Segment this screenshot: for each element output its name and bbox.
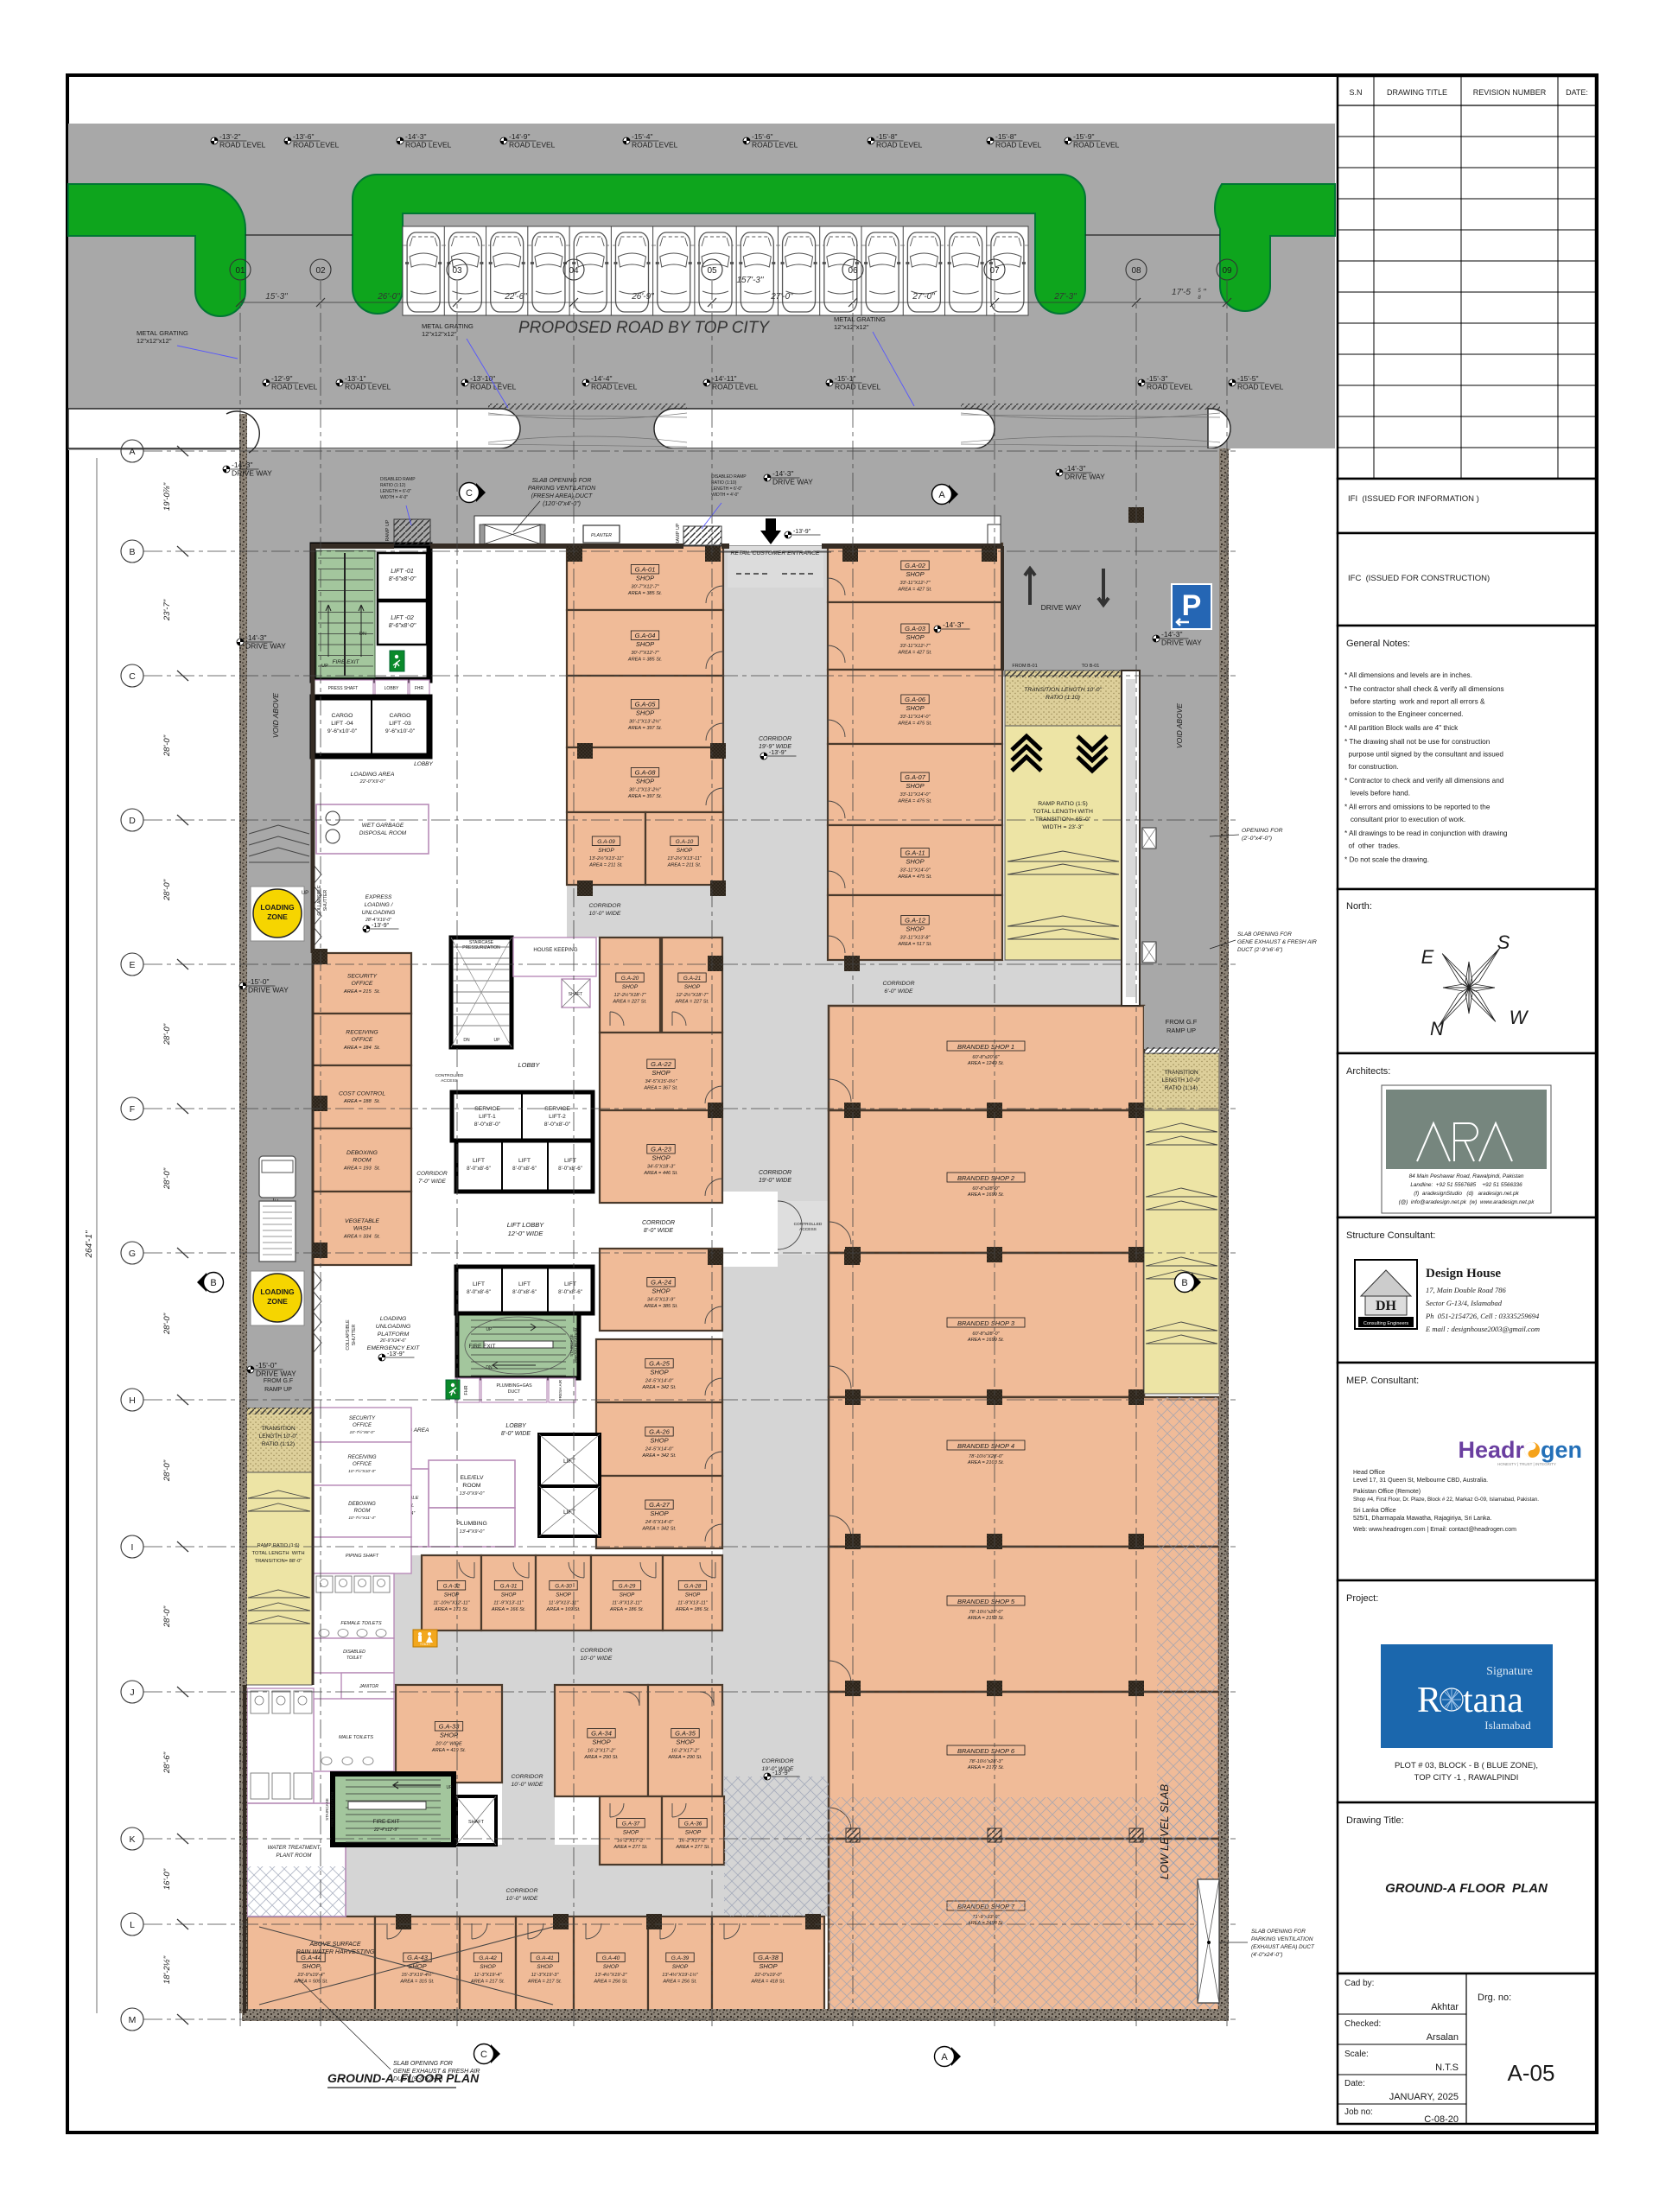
svg-text:DRIVE WAY: DRIVE WAY: [245, 642, 286, 651]
svg-text:Architects:: Architects:: [1346, 1066, 1390, 1077]
svg-text:11'-9"X13'-11": 11'-9"X13'-11": [549, 1601, 580, 1606]
svg-text:DRIVE WAY: DRIVE WAY: [772, 478, 813, 486]
svg-text:ZONE: ZONE: [267, 912, 288, 921]
svg-text:SHOP: SHOP: [676, 1738, 694, 1746]
svg-text:SHOP: SHOP: [906, 570, 924, 578]
svg-text:OFFICE: OFFICE: [353, 1423, 372, 1428]
svg-text:BRANDED SHOP 1: BRANDED SHOP 1: [957, 1043, 1014, 1051]
svg-text:METAL GRATING: METAL GRATING: [137, 329, 188, 337]
svg-text:02: 02: [315, 266, 326, 276]
svg-text:ROAD LEVEL: ROAD LEVEL: [712, 383, 759, 391]
svg-text:AREA = 315 St.: AREA = 315 St.: [399, 1980, 434, 1985]
svg-text:G.A-12: G.A-12: [905, 917, 926, 925]
svg-text:* The drawing shall not be use: * The drawing shall not be use for const…: [1344, 738, 1491, 746]
svg-text:AREA = 186 St.: AREA = 186 St.: [609, 1607, 644, 1612]
svg-text:-13'-9": -13'-9": [372, 923, 390, 929]
svg-text:AREA = 385 St.: AREA = 385 St.: [627, 658, 662, 663]
svg-text:SHAFT: SHAFT: [569, 992, 582, 997]
svg-text:-15'-8": -15'-8": [876, 132, 897, 141]
svg-text:26'-9"X24'-6": 26'-9"X24'-6": [379, 1338, 407, 1344]
svg-text:omission to the Engineer conce: omission to the Engineer concerned.: [1344, 710, 1463, 718]
svg-text:19'-0⅞": 19'-0⅞": [162, 482, 172, 511]
svg-text:Level 17, 31 Queen St, Melbour: Level 17, 31 Queen St, Melbourne CBD, Au…: [1353, 1478, 1488, 1484]
svg-text:* All dimensions and levels ar: * All dimensions and levels are in inche…: [1344, 671, 1472, 679]
svg-text:FHR: FHR: [464, 1385, 469, 1395]
svg-text:General Notes:: General Notes:: [1346, 639, 1410, 649]
svg-text:12'-2½"X18'-7": 12'-2½"X18'-7": [677, 992, 709, 998]
svg-text:10'-7½"X10'-0": 10'-7½"X10'-0": [348, 1468, 376, 1474]
svg-text:K: K: [129, 1834, 135, 1845]
svg-text:LENGTH 10'-0": LENGTH 10'-0": [1162, 1077, 1201, 1084]
svg-text:-14'-3": -14'-3": [772, 469, 793, 478]
svg-text:D: D: [129, 816, 136, 826]
svg-text:WIDTH = 23'-3": WIDTH = 23'-3": [1042, 824, 1084, 830]
svg-text:G.A-02: G.A-02: [905, 562, 926, 569]
svg-text:11'-3"X19'-3": 11'-3"X19'-3": [531, 1973, 560, 1978]
svg-text:DN: DN: [486, 1365, 493, 1370]
svg-text:COLLAPSIBLE: COLLAPSIBLE: [317, 885, 322, 916]
svg-text:13'-4"X9'-0": 13'-4"X9'-0": [460, 1529, 486, 1535]
svg-text:PRESS SHAFT: PRESS SHAFT: [328, 686, 359, 691]
svg-text:11'-3"X19'-4": 11'-3"X19'-4": [474, 1973, 503, 1978]
svg-text:CORRIDOR: CORRIDOR: [882, 981, 914, 987]
svg-text:PARKING VENTILATION: PARKING VENTILATION: [1251, 1936, 1313, 1942]
svg-text:-15'-6": -15'-6": [752, 132, 772, 141]
svg-text:8'-6"x8'-0": 8'-6"x8'-0": [389, 576, 416, 582]
svg-text:DRIVE WAY: DRIVE WAY: [1161, 639, 1202, 647]
svg-text:AREA = 186 St.: AREA = 186 St.: [675, 1607, 709, 1612]
svg-text:G.A-09: G.A-09: [597, 839, 615, 845]
svg-text:SHOP: SHOP: [906, 704, 924, 712]
svg-text:SHOP: SHOP: [556, 1592, 571, 1599]
svg-text:AREA = 427 St.: AREA = 427 St.: [897, 588, 931, 593]
svg-text:C: C: [466, 488, 473, 499]
svg-text:G.A-28: G.A-28: [684, 1584, 702, 1590]
svg-text:PRESSURIZATION: PRESSURIZATION: [574, 1328, 578, 1363]
svg-text:UP: UP: [302, 891, 308, 896]
svg-text:L: L: [130, 1920, 135, 1930]
svg-text:ROAD LEVEL: ROAD LEVEL: [345, 383, 391, 391]
svg-text:LIFT-2: LIFT-2: [549, 1114, 566, 1120]
svg-text:(120'-0"x4'-0"): (120'-0"x4'-0"): [543, 501, 581, 507]
svg-text:UP: UP: [486, 1327, 493, 1332]
svg-text:Shop #4, First Floor, Dr. Plaz: Shop #4, First Floor, Dr. Plaze, Block #…: [1353, 1497, 1539, 1503]
svg-text:AREA = 385 St.: AREA = 385 St.: [643, 1304, 677, 1309]
svg-text:ROAD LEVEL: ROAD LEVEL: [995, 141, 1042, 149]
svg-text:DUCT: DUCT: [508, 1389, 521, 1395]
svg-text:24'-5"X14'-0": 24'-5"X14'-0": [645, 1520, 674, 1525]
svg-text:CORRIDOR: CORRIDOR: [642, 1220, 675, 1226]
svg-text:RAMP UP: RAMP UP: [1166, 1027, 1196, 1034]
svg-text:AREA = 1699 St.: AREA = 1699 St.: [967, 1338, 1004, 1343]
svg-text:Sri Lanka Office: Sri Lanka Office: [1353, 1508, 1396, 1514]
svg-text:CORRIDOR: CORRIDOR: [511, 1774, 543, 1780]
svg-text:AREA = 227 St.: AREA = 227 St.: [612, 1000, 646, 1005]
svg-text:BRANDED SHOP 3: BRANDED SHOP 3: [957, 1319, 1015, 1327]
svg-text:I: I: [131, 1542, 134, 1553]
svg-text:8'-6"x8'-0": 8'-6"x8'-0": [389, 623, 416, 629]
svg-text:-14'-9": -14'-9": [509, 132, 530, 141]
svg-text:24'-5"X14'-0": 24'-5"X14'-0": [645, 1379, 674, 1384]
svg-text:PLUMBING+GAS: PLUMBING+GAS: [496, 1383, 532, 1389]
svg-text:AREA = 342 St.: AREA = 342 St.: [641, 1527, 676, 1532]
svg-text:AREA = 277 St.: AREA = 277 St.: [613, 1845, 647, 1850]
svg-text:33'-11"X14'-0": 33'-11"X14'-0": [900, 868, 931, 874]
svg-text:": ": [1203, 288, 1206, 297]
svg-text:G.A-41: G.A-41: [536, 1955, 554, 1961]
svg-text:26'-0": 26'-0": [377, 292, 400, 302]
svg-text:SHOP: SHOP: [302, 1962, 320, 1970]
svg-text:78'-10½"X28'-0": 78'-10½"X28'-0": [969, 1453, 1004, 1459]
svg-text:24'-5"X14'-0": 24'-5"X14'-0": [645, 1447, 674, 1452]
svg-text:ELE/ELV: ELE/ELV: [460, 1475, 484, 1481]
svg-text:Cad by:: Cad by:: [1344, 1979, 1374, 1988]
svg-text:AREA = 517 St.: AREA = 517 St.: [897, 942, 931, 947]
svg-text:RATIO (1:12): RATIO (1:12): [262, 1441, 295, 1447]
svg-text:34'-5"X15'-0½": 34'-5"X15'-0½": [645, 1078, 678, 1084]
svg-text:TRANSITION= 88'-0": TRANSITION= 88'-0": [255, 1559, 302, 1564]
svg-text:AREA = 334 St.: AREA = 334 St.: [343, 1234, 380, 1239]
svg-text:* The contractor shall check &: * The contractor shall check & verify al…: [1344, 685, 1504, 693]
svg-text:10'-7½"X11'-4": 10'-7½"X11'-4": [348, 1515, 376, 1521]
svg-text:AREA = 217 St.: AREA = 217 St.: [470, 1980, 505, 1985]
svg-text:UP: UP: [321, 664, 328, 669]
svg-text:33'-11"X14'-0": 33'-11"X14'-0": [900, 792, 931, 798]
svg-text:8'-0" WIDE: 8'-0" WIDE: [501, 1431, 531, 1437]
svg-text:PLUMBING: PLUMBING: [456, 1521, 487, 1527]
svg-text:SHOP: SHOP: [906, 925, 924, 933]
svg-text:* Do not scale the drawing.: * Do not scale the drawing.: [1344, 856, 1429, 864]
svg-text:AREA = 342 St.: AREA = 342 St.: [641, 1453, 676, 1459]
svg-text:LOBBY: LOBBY: [518, 1061, 540, 1069]
svg-text:AREA = 227 St.: AREA = 227 St.: [674, 1000, 709, 1005]
svg-text:AREA = 385 St.: AREA = 385 St.: [627, 591, 662, 596]
svg-text:ROAD LEVEL: ROAD LEVEL: [835, 383, 881, 391]
svg-text:DRAWING TITLE: DRAWING TITLE: [1387, 88, 1447, 97]
svg-text:7'-0" WIDE: 7'-0" WIDE: [418, 1179, 446, 1185]
svg-text:G.A-26: G.A-26: [649, 1428, 671, 1436]
svg-text:H: H: [129, 1395, 136, 1406]
svg-text:BRANDED SHOP 5: BRANDED SHOP 5: [957, 1598, 1015, 1605]
svg-text:AREA = 2172 St.: AREA = 2172 St.: [967, 1765, 1004, 1770]
svg-text:8'-0"x8'-6": 8'-0"x8'-6": [512, 1166, 537, 1172]
svg-text:09: 09: [1222, 266, 1232, 276]
svg-text:Pakistan Office (Remote): Pakistan Office (Remote): [1353, 1489, 1421, 1495]
svg-text:G.A-38: G.A-38: [758, 1954, 779, 1961]
svg-text:ROAD LEVEL: ROAD LEVEL: [1147, 383, 1193, 391]
svg-text:27'-3": 27'-3": [1053, 292, 1077, 302]
svg-text:* Contractor to check and veri: * Contractor to check and verify all dim…: [1344, 777, 1504, 785]
svg-text:22'-6": 22'-6": [504, 292, 527, 302]
svg-text:Consulting Engineers: Consulting Engineers: [1363, 1321, 1409, 1326]
svg-text:SERVICE: SERVICE: [544, 1106, 570, 1112]
svg-text:COST CONTROL: COST CONTROL: [339, 1090, 385, 1096]
svg-text:G.A-34: G.A-34: [591, 1730, 612, 1738]
svg-text:RAMP UP: RAMP UP: [676, 523, 681, 544]
svg-text:RECEIVING: RECEIVING: [347, 1455, 376, 1460]
svg-text:-15'-0": -15'-0": [256, 1361, 276, 1370]
svg-text:6'-0" WIDE: 6'-0" WIDE: [884, 988, 913, 995]
svg-text:G.A-04: G.A-04: [635, 632, 656, 639]
svg-text:06: 06: [848, 266, 858, 276]
svg-text:AREA = 475 St.: AREA = 475 St.: [897, 721, 931, 727]
svg-text:9'-6"x10'-0": 9'-6"x10'-0": [327, 728, 358, 734]
svg-text:CORRIDOR: CORRIDOR: [588, 903, 620, 909]
svg-text:AREA = 505 St.: AREA = 505 St.: [293, 1980, 327, 1985]
svg-text:17, Main Double Road 786: 17, Main Double Road 786: [1426, 1286, 1507, 1294]
svg-text:ROOM: ROOM: [462, 1483, 480, 1489]
svg-text:B: B: [210, 1278, 216, 1288]
svg-text:WATER TREATMENT: WATER TREATMENT: [268, 1845, 321, 1851]
svg-text:PIPING SHAFT: PIPING SHAFT: [346, 1554, 379, 1559]
svg-text:AREA = 475 St.: AREA = 475 St.: [897, 874, 931, 880]
svg-text:FEMALE TOILETS: FEMALE TOILETS: [340, 1621, 381, 1626]
svg-text:ROAD LEVEL: ROAD LEVEL: [1073, 141, 1120, 149]
svg-text:A-05: A-05: [1508, 2060, 1555, 2086]
svg-text:ROAD LEVEL: ROAD LEVEL: [632, 141, 678, 149]
svg-text:-14'-4": -14'-4": [591, 374, 612, 383]
svg-text:SHOP: SHOP: [501, 1592, 517, 1599]
svg-text:28'-0": 28'-0": [162, 1605, 172, 1628]
svg-text:LOADING /: LOADING /: [365, 902, 394, 908]
svg-text:04: 04: [569, 266, 579, 276]
svg-text:-15'-9": -15'-9": [1073, 132, 1094, 141]
svg-text:Scale:: Scale:: [1344, 2050, 1369, 2059]
svg-text:28'-0": 28'-0": [162, 734, 172, 757]
svg-text:Sector G-13/4, Islamabad: Sector G-13/4, Islamabad: [1426, 1299, 1503, 1307]
svg-text:22'-4"x12'-9": 22'-4"x12'-9": [373, 1827, 398, 1833]
svg-text:G.A-42: G.A-42: [479, 1955, 497, 1961]
svg-text:ROAD LEVEL: ROAD LEVEL: [271, 383, 318, 391]
svg-text:Structure Consultant:: Structure Consultant:: [1346, 1230, 1435, 1241]
svg-text:W: W: [1510, 1007, 1529, 1028]
svg-text:01: 01: [235, 266, 245, 276]
svg-text:SECURITY: SECURITY: [349, 1416, 376, 1421]
svg-text:S.N: S.N: [1349, 88, 1362, 97]
svg-text:LIFT -03: LIFT -03: [389, 721, 411, 727]
svg-text:G.A-22: G.A-22: [651, 1060, 672, 1068]
svg-text:DRIVE WAY: DRIVE WAY: [232, 469, 272, 478]
svg-text:FRESH AIR: FRESH AIR: [558, 1379, 563, 1401]
svg-text:Signature: Signature: [1486, 1665, 1533, 1678]
svg-text:AREA = 419 St.: AREA = 419 St.: [431, 1748, 466, 1753]
svg-text:SHOP: SHOP: [684, 984, 701, 990]
svg-text:SHOP: SHOP: [906, 633, 924, 641]
svg-text:IFI (ISSUED FOR INFORMATION ): IFI (ISSUED FOR INFORMATION ): [1348, 494, 1479, 504]
svg-text:M: M: [129, 2015, 137, 2025]
svg-text:12'-2½"X18'-7": 12'-2½"X18'-7": [614, 992, 647, 998]
svg-text:-14'-3": -14'-3": [1161, 630, 1182, 639]
svg-text:FROM G.F: FROM G.F: [1166, 1018, 1198, 1026]
svg-text:AREA = 211 St.: AREA = 211 St.: [588, 863, 623, 868]
svg-text:G.A-07: G.A-07: [905, 773, 926, 781]
svg-text:G.A-33: G.A-33: [439, 1723, 461, 1731]
svg-text:PLANT ROOM: PLANT ROOM: [276, 1853, 313, 1859]
svg-text:G.A-39: G.A-39: [671, 1955, 690, 1961]
svg-text:G.A-03: G.A-03: [905, 625, 926, 632]
svg-text:SHOP: SHOP: [592, 1738, 610, 1746]
svg-text:16'-0": 16'-0": [162, 1868, 172, 1890]
svg-text:AREA = 397 St.: AREA = 397 St.: [627, 726, 662, 731]
svg-text:DRIVE WAY: DRIVE WAY: [248, 986, 289, 995]
svg-text:before starting work and repo: before starting work and report all erro…: [1344, 698, 1485, 706]
svg-text:VEGETABLE: VEGETABLE: [345, 1218, 379, 1224]
svg-text:-15'-8": -15'-8": [995, 132, 1016, 141]
svg-text:SHOP: SHOP: [650, 1369, 668, 1376]
svg-text:FIRE EXIT: FIRE EXIT: [332, 659, 359, 665]
svg-text:-15'-0": -15'-0": [248, 977, 269, 986]
svg-text:WASH: WASH: [353, 1226, 371, 1232]
svg-text:BRANDED SHOP 4: BRANDED SHOP 4: [957, 1442, 1014, 1450]
svg-text:of other trades.: of other trades.: [1344, 842, 1400, 850]
svg-text:16'-2"X17'-2": 16'-2"X17'-2": [671, 1749, 700, 1754]
svg-text:AREA = 367 St.: AREA = 367 St.: [643, 1086, 677, 1091]
svg-text:AREA = 446 St.: AREA = 446 St.: [643, 1171, 677, 1176]
svg-text:RATIO (1:12): RATIO (1:12): [380, 483, 406, 488]
svg-text:* All drawings to be read in c: * All drawings to be read in conjunction…: [1344, 829, 1508, 837]
svg-text:27'-0": 27'-0": [912, 292, 935, 302]
svg-text:SHOP: SHOP: [622, 984, 639, 990]
svg-text:33'-11"X14'-0": 33'-11"X14'-0": [900, 715, 931, 720]
svg-text:-14'-3": -14'-3": [943, 620, 963, 629]
svg-text:(f) aradesignStudio (d) a: (f) aradesignStudio (d) aradesign.net.pk: [1414, 1191, 1519, 1197]
svg-text:E: E: [1421, 946, 1434, 968]
svg-text:TRANSITION= 65'-0": TRANSITION= 65'-0": [1035, 817, 1091, 823]
svg-text:GENE EXHAUST & FRESH AIR: GENE EXHAUST & FRESH AIR: [1237, 939, 1317, 945]
svg-text:28'-0": 28'-0": [162, 1023, 172, 1046]
svg-text:IFC (ISSUED FOR CONSTRUCTION): IFC (ISSUED FOR CONSTRUCTION): [1348, 574, 1490, 583]
svg-text:08: 08: [1131, 266, 1141, 276]
svg-text:G.A-36: G.A-36: [684, 1821, 702, 1827]
svg-text:13'-0"X9'-0": 13'-0"X9'-0": [460, 1491, 486, 1497]
svg-text:SHOP: SHOP: [652, 1287, 670, 1295]
svg-text:DRIVE WAY: DRIVE WAY: [1065, 473, 1105, 481]
svg-text:-13'-10": -13'-10": [470, 374, 495, 383]
svg-text:07: 07: [989, 266, 1000, 276]
svg-text:13'-4½"X19'-2": 13'-4½"X19'-2": [595, 1972, 628, 1978]
svg-text:tana: tana: [1463, 1681, 1523, 1720]
svg-text:Date:: Date:: [1344, 2079, 1365, 2088]
svg-text:30'-1"X13'-2½": 30'-1"X13'-2½": [629, 787, 662, 793]
svg-text:(4'-0"x24'-0"): (4'-0"x24'-0"): [1251, 1952, 1282, 1958]
svg-text:30'-7"X12'-7": 30'-7"X12'-7": [631, 651, 659, 656]
svg-text:MEP. Consultant:: MEP. Consultant:: [1346, 1376, 1419, 1386]
svg-text:(FRESH AREA) DUCT: (FRESH AREA) DUCT: [531, 493, 593, 499]
svg-text:Web: www.headrogen.com | Email: Web: www.headrogen.com | Email: contact@…: [1353, 1527, 1516, 1533]
svg-text:RATIO (1:10): RATIO (1:10): [1046, 695, 1080, 701]
svg-text:CONTROLLED: CONTROLLED: [435, 1073, 464, 1078]
svg-text:8'-0" WIDE: 8'-0" WIDE: [644, 1228, 673, 1234]
svg-text:28'-0": 28'-0": [162, 879, 172, 901]
svg-text:28'-6": 28'-6": [162, 1751, 172, 1774]
svg-text:F: F: [130, 1104, 135, 1115]
svg-text:05: 05: [707, 266, 717, 276]
svg-text:ROAD LEVEL: ROAD LEVEL: [509, 141, 556, 149]
svg-text:SLAB OPENING FOR: SLAB OPENING FOR: [393, 2061, 453, 2067]
svg-text:gen: gen: [1541, 1437, 1582, 1463]
svg-text:28'-0": 28'-0": [162, 1459, 172, 1482]
svg-text:34'-5"X13'-9": 34'-5"X13'-9": [647, 1298, 676, 1303]
svg-text:SHOP: SHOP: [636, 575, 654, 582]
svg-text:LOADING: LOADING: [380, 1316, 407, 1322]
svg-text:26'-9": 26'-9": [631, 292, 654, 302]
svg-text:G.A-24: G.A-24: [651, 1279, 671, 1287]
svg-text:UP: UP: [447, 1785, 454, 1790]
svg-text:19'-9" WIDE: 19'-9" WIDE: [759, 744, 791, 750]
svg-text:SHAFT: SHAFT: [468, 1820, 485, 1825]
svg-text:CARGO: CARGO: [332, 713, 353, 719]
svg-text:UNLOADING: UNLOADING: [362, 910, 396, 916]
svg-text:Drawing Title:: Drawing Title:: [1346, 1815, 1404, 1826]
svg-text:SHOP: SHOP: [759, 1962, 777, 1970]
svg-text:PARKING VENTILATION: PARKING VENTILATION: [528, 486, 596, 492]
svg-text:G.A-30: G.A-30: [555, 1584, 572, 1590]
svg-text:FROM B-01: FROM B-01: [1012, 664, 1037, 669]
svg-text:AREA = 2103 St.: AREA = 2103 St.: [967, 1460, 1004, 1465]
svg-text:11'-10½"X12'-11": 11'-10½"X12'-11": [433, 1600, 470, 1606]
svg-text:-13'-9": -13'-9": [387, 1351, 405, 1357]
svg-text:78'-10½"x28'-0": 78'-10½"x28'-0": [969, 1609, 1003, 1615]
svg-text:FHR: FHR: [415, 686, 424, 691]
svg-text:28'-0": 28'-0": [162, 1167, 172, 1190]
svg-text:DUCT (2'-9"x6'-6"): DUCT (2'-9"x6'-6"): [1237, 947, 1282, 953]
svg-text:ROAD LEVEL: ROAD LEVEL: [752, 141, 798, 149]
svg-text:Job no:: Job no:: [1344, 2107, 1373, 2117]
svg-text:30'-7"X12'-7": 30'-7"X12'-7": [631, 585, 659, 590]
svg-text:AREA = 166 St.: AREA = 166 St.: [491, 1607, 525, 1612]
svg-text:DEBOXING: DEBOXING: [346, 1150, 378, 1156]
svg-text:9'-6"x10'-0": 9'-6"x10'-0": [385, 728, 416, 734]
svg-text:SHOP: SHOP: [537, 1964, 553, 1970]
svg-text:LOBBY: LOBBY: [414, 761, 433, 767]
svg-text:-12'-9": -12'-9": [271, 374, 292, 383]
svg-text:GROUND-A FLOOR PLAN: GROUND-A FLOOR PLAN: [1385, 1881, 1548, 1896]
svg-text:SHOP: SHOP: [623, 1830, 639, 1836]
svg-text:Checked:: Checked:: [1344, 2019, 1381, 2029]
svg-text:15'-3"X19'-4½": 15'-3"X19'-4½": [402, 1972, 435, 1978]
svg-text:SHOP: SHOP: [672, 1964, 689, 1970]
svg-text:16'-2"X17'-2": 16'-2"X17'-2": [588, 1749, 616, 1754]
svg-text:SECURITY: SECURITY: [347, 974, 378, 980]
svg-text:33'-11"X12'-7": 33'-11"X12'-7": [900, 581, 931, 586]
svg-text:N: N: [1430, 1018, 1444, 1039]
svg-text:PLANTER: PLANTER: [591, 533, 612, 538]
svg-text:WET GARBAGE: WET GARBAGE: [362, 823, 404, 829]
svg-text:CORRIDOR: CORRIDOR: [759, 1170, 791, 1176]
svg-text:525/1, Dharmapala Mawatha, Raj: 525/1, Dharmapala Mawatha, Rajagiriya, S…: [1353, 1516, 1491, 1522]
svg-text:SHUTTER: SHUTTER: [352, 1325, 357, 1346]
svg-text:BRANDED SHOP 2: BRANDED SHOP 2: [957, 1174, 1015, 1182]
svg-text:METAL GRATING: METAL GRATING: [422, 322, 474, 330]
svg-text:(EXHAUST AREA) DUCT: (EXHAUST AREA) DUCT: [1251, 1944, 1315, 1950]
svg-text:AREA = 277 St.: AREA = 277 St.: [675, 1845, 709, 1850]
svg-text:12"x12"x12": 12"x12"x12": [422, 330, 457, 338]
svg-text:22'-0"X9'-0": 22'-0"X9'-0": [359, 779, 386, 785]
svg-text:11'-9"X13'-11": 11'-9"X13'-11": [612, 1601, 643, 1606]
svg-text:S: S: [1497, 931, 1510, 953]
svg-text:EXPRESS: EXPRESS: [365, 894, 392, 900]
svg-text:13'-2½"X13'-11": 13'-2½"X13'-11": [589, 855, 625, 861]
svg-text:DH: DH: [1376, 1299, 1397, 1313]
svg-text:PLATFORM: PLATFORM: [378, 1332, 410, 1338]
svg-text:LIFT LOBBY: LIFT LOBBY: [507, 1221, 545, 1229]
svg-text:DRIVE WAY: DRIVE WAY: [256, 1370, 296, 1378]
svg-text:G.A-08: G.A-08: [635, 769, 657, 777]
svg-text:OFFICE: OFFICE: [352, 1037, 373, 1043]
svg-text:SHOP: SHOP: [906, 782, 924, 790]
svg-text:SHOP: SHOP: [598, 848, 614, 854]
svg-text:R: R: [1417, 1681, 1441, 1720]
